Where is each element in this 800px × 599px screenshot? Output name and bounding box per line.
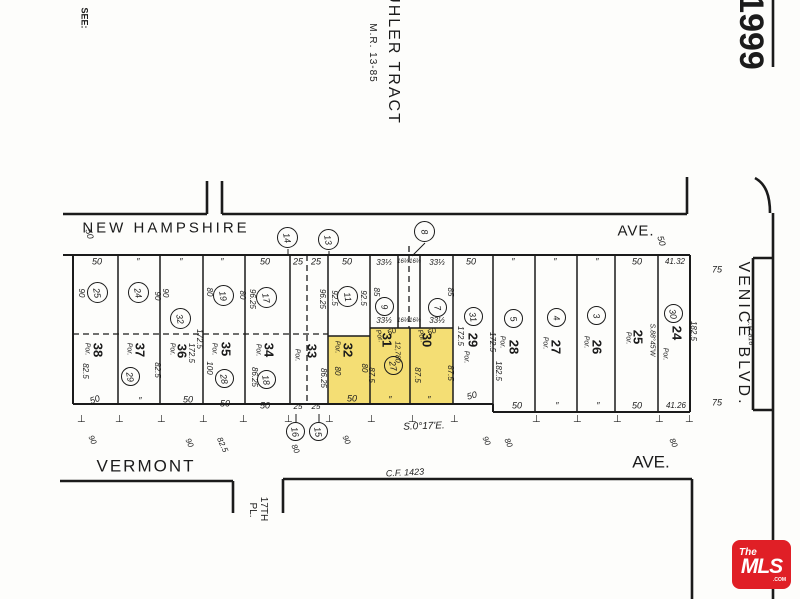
survey-tick: ⊥	[613, 414, 622, 425]
lot-number-27: 27	[550, 340, 563, 354]
parcel-bubble-number: 30	[668, 308, 680, 320]
dim-label: 50	[92, 258, 102, 267]
tract-ref: M.R. 13-85	[367, 23, 377, 82]
parcel-bubble-number: 25	[92, 287, 104, 299]
survey-tick: ⊥	[199, 414, 208, 425]
parcel-bubble-8: 8	[414, 221, 435, 242]
dim-label: 87.5	[446, 365, 454, 381]
parcel-bubble-number: 3	[591, 312, 602, 319]
dim-label: 25	[294, 403, 303, 411]
dim-label: 80	[333, 367, 341, 376]
survey-tick: ⊥	[115, 414, 124, 425]
street-17th-pl-line2: PL.	[247, 502, 257, 517]
dim-label: 85	[446, 288, 454, 297]
dim-label: Por.	[255, 344, 262, 357]
parcel-bubble-number: 13	[323, 234, 335, 246]
survey-tick: ⊥	[157, 414, 166, 425]
dim-label: ″	[555, 402, 558, 411]
dim-label: 82.5	[81, 363, 89, 379]
dim-label: ″	[136, 258, 139, 267]
dim-label: Por.	[84, 343, 91, 356]
parcel-bubble-number: 9	[379, 303, 390, 310]
parcel-bubble-5: 5	[504, 309, 523, 328]
dim-label: ″	[138, 397, 141, 406]
parcel-bubble-18: 18	[257, 370, 276, 389]
dim-label: 85	[372, 288, 380, 297]
dim-label: 50	[220, 400, 230, 409]
parcel-bubble-number: 16	[290, 426, 302, 438]
parcel-bubble-4: 4	[547, 308, 566, 327]
parcel-bubble-number: 15	[313, 426, 325, 438]
venice-width-south: 75	[712, 399, 722, 408]
dim-label: 50	[342, 258, 352, 267]
parcel-bubble-number: 5	[508, 315, 519, 322]
dim-label: 50	[347, 395, 357, 404]
dim-label: 50	[260, 402, 270, 411]
dim-label: Por.	[583, 336, 590, 349]
parcel-bubble-19: 19	[213, 285, 234, 306]
dim-label: 25	[312, 403, 321, 411]
dim-label: Por.	[499, 336, 506, 349]
dim-label: 82.5	[153, 362, 161, 378]
dim-label: 50	[466, 258, 476, 267]
dim-label: 90	[77, 289, 85, 298]
dim-label: 16⅔	[397, 259, 409, 265]
parcel-bubble-number: 24	[133, 287, 145, 299]
dim-label: Por.	[625, 332, 632, 345]
parcel-bubble-28: 28	[215, 369, 234, 388]
dim-label: 86.25	[319, 368, 327, 388]
page-number: 1999	[734, 0, 768, 70]
plat-map-page: SEE: UHLER TRACT M.R. 13-85 1999 NEW HAM…	[0, 0, 800, 599]
dim-label: 50	[632, 402, 642, 411]
parcel-bubble-29: 29	[121, 367, 140, 386]
dim-label: 182.5	[689, 321, 697, 341]
lot-number-33: 33	[306, 344, 319, 358]
dim-label: 25	[311, 258, 321, 267]
survey-tick: ⊥	[284, 414, 293, 425]
tract-title: UHLER TRACT	[385, 0, 401, 125]
parcel-bubble-25: 25	[87, 282, 108, 303]
see-note: SEE:	[80, 7, 89, 28]
dim-label: ″	[596, 402, 599, 411]
dim-label: 100	[205, 361, 213, 374]
parcel-bubble-number: 8	[419, 228, 430, 235]
dim-label: Por.	[542, 337, 549, 350]
parcel-bubble-11: 11	[337, 286, 358, 307]
dim-label: 172.5	[488, 332, 496, 352]
dim-label: 96.25	[318, 289, 326, 309]
dim-label: Por.	[126, 343, 133, 356]
parcel-bubble-number: 19	[218, 290, 230, 302]
parcel-bubble-14: 14	[277, 227, 298, 248]
street-new-hampshire: NEW HAMPSHIRE	[82, 221, 249, 236]
parcel-bubble-13: 13	[318, 229, 339, 250]
parcel-bubble-27: 27	[384, 356, 403, 375]
parcel-bubble-24: 24	[128, 282, 149, 303]
parcel-bubble-number: 18	[261, 374, 273, 386]
lot-number-36: 36	[176, 344, 189, 358]
lot-number-37: 37	[134, 343, 147, 357]
lot-number-32: 32	[342, 343, 355, 357]
lot-number-24: 24	[671, 326, 684, 340]
street-lines	[60, 0, 774, 599]
dim-label: 50	[512, 402, 522, 411]
dim-label: 25	[293, 258, 303, 267]
dim-label: 16⅔	[397, 318, 409, 324]
dim-label: 90	[161, 289, 169, 298]
dim-label: Por.	[169, 343, 176, 356]
mls-logo-com: .COM	[773, 577, 786, 583]
parcel-bubble-32: 32	[170, 308, 191, 329]
dim-label: ″	[427, 396, 430, 405]
lot-number-31: 31	[381, 333, 394, 347]
parcel-bubble-number: 27	[388, 360, 400, 372]
dim-label: 33⅓	[376, 317, 392, 325]
dim-label: 50	[183, 396, 193, 405]
parcel-bubble-number: 28	[219, 373, 231, 385]
dim-label: 33⅓	[429, 259, 445, 267]
dim-label: 90	[153, 292, 161, 301]
dim-label: 172.5	[456, 326, 464, 346]
parcel-bubble-9: 9	[375, 297, 394, 316]
dim-label: Por.	[294, 349, 301, 362]
parcel-bubble-number: 32	[175, 313, 187, 325]
parcel-bubble-7: 7	[428, 298, 447, 317]
dim-label: Por.	[334, 341, 341, 354]
survey-tick: ⊥	[325, 414, 334, 425]
survey-tick: ⊥	[532, 414, 541, 425]
venice-width-north: 75	[712, 266, 722, 275]
survey-tick: ⊥	[655, 414, 664, 425]
survey-tick: ⊥	[77, 414, 86, 425]
survey-tick: ⊥	[367, 414, 376, 425]
parcel-bubble-31: 31	[464, 307, 483, 326]
parcel-bubble-number: 11	[342, 291, 353, 302]
street-17th-pl-line1: 17TH	[258, 497, 268, 521]
dim-label: 80	[238, 291, 246, 300]
lot-number-25: 25	[632, 330, 645, 344]
parcel-bubble-number: 14	[282, 232, 294, 244]
dim-label: 50	[632, 258, 642, 267]
survey-tick: ⊥	[573, 414, 582, 425]
lot-number-26: 26	[591, 340, 604, 354]
dim-label: Por.	[211, 343, 218, 356]
dim-label: ″	[220, 258, 223, 267]
dim-label: ″	[595, 258, 598, 267]
survey-tick: ⊥	[685, 414, 694, 425]
street-vermont-ave: AVE.	[632, 454, 669, 471]
survey-tick: ⊥	[450, 414, 459, 425]
lot-number-30: 30	[421, 333, 434, 347]
dim-label: Por.	[662, 348, 669, 361]
dim-label: 87.5	[413, 367, 421, 383]
dim-label: ″	[388, 396, 391, 405]
dim-label: 172.5	[195, 329, 203, 349]
lot-number-38: 38	[92, 343, 105, 357]
parcel-bubble-30: 30	[664, 304, 683, 323]
dim-label: S.88°45'W	[649, 324, 656, 357]
dim-label: Por.	[463, 351, 470, 364]
lot-number-29: 29	[467, 333, 480, 347]
lot-number-35: 35	[220, 342, 233, 356]
parcel-bubble-17: 17	[256, 287, 277, 308]
parcel-bubble-number: 17	[261, 292, 273, 304]
survey-tick: ⊥	[239, 414, 248, 425]
dim-label: 80	[205, 288, 213, 297]
dim-label: 41.26	[666, 402, 686, 410]
dim-label: 33⅓	[429, 317, 445, 325]
dim-label: ″	[179, 258, 182, 267]
dim-label: 16⅔	[409, 259, 421, 265]
lot-number-34: 34	[263, 343, 276, 357]
parcel-bubble-number: 29	[125, 371, 137, 383]
dim-label: 50	[260, 258, 270, 267]
dim-label: 96.25	[248, 289, 256, 309]
parcel-bubble-3: 3	[587, 306, 606, 325]
mls-logo: The MLS .COM	[732, 540, 791, 589]
survey-tick: ⊥	[408, 414, 417, 425]
street-vermont: VERMONT	[97, 458, 196, 475]
dim-label: 16⅔	[409, 318, 421, 324]
street-new-hampshire-ave: AVE.	[617, 224, 654, 239]
parcel-bubble-number: 7	[432, 304, 443, 311]
parcel-bubble-number: 4	[551, 314, 562, 321]
parcel-bubble-number: 31	[468, 311, 480, 323]
venice-cp-ref: C.P. 816	[746, 319, 754, 346]
dim-label: 182.5	[494, 361, 502, 381]
dim-label: ″	[553, 258, 556, 267]
dim-label: ″	[511, 258, 514, 267]
dim-label: 87.5	[367, 367, 375, 383]
dim-label: 92.5	[359, 290, 367, 306]
lot-number-28: 28	[508, 340, 521, 354]
dim-label: 33⅓	[376, 259, 392, 267]
dim-label: 41.32	[665, 258, 685, 266]
mls-logo-mls: MLS	[741, 556, 782, 577]
